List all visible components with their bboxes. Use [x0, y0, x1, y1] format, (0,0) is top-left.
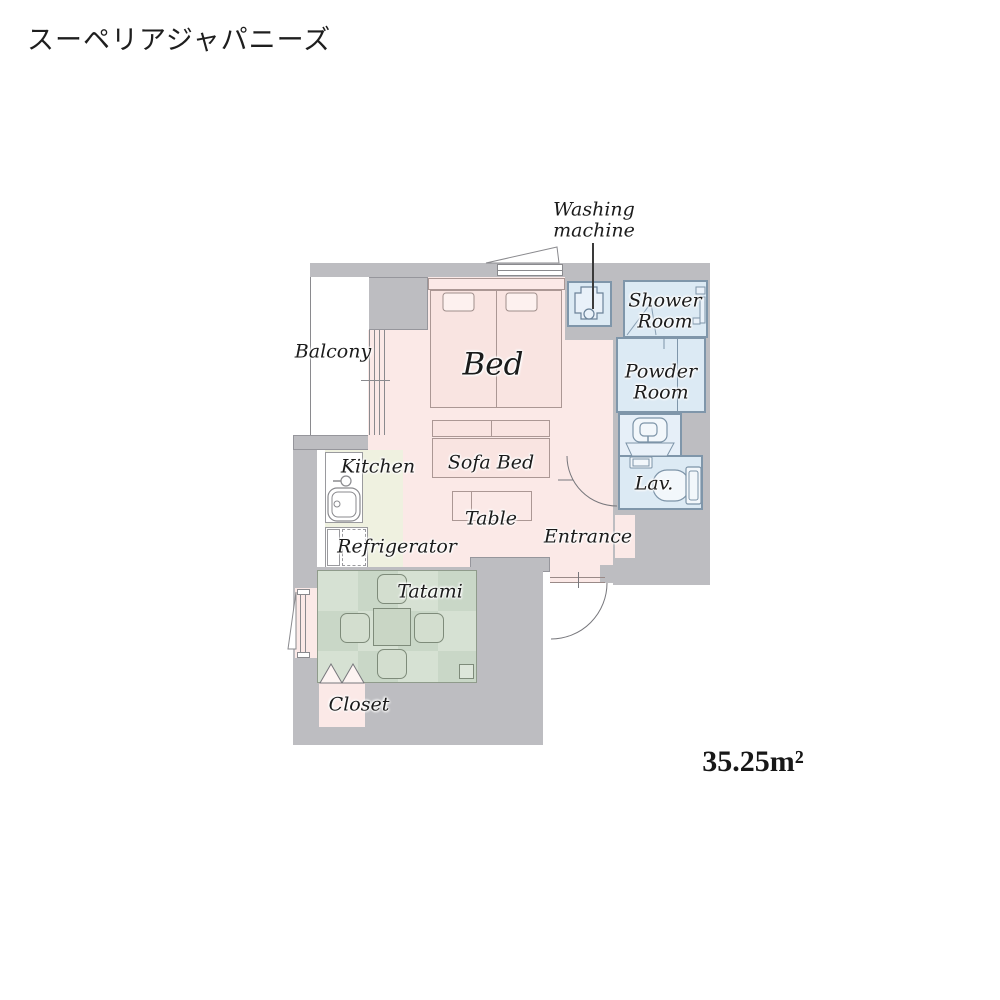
label-washing-machine: Washing machine [553, 200, 635, 243]
page-title: スーペリアジャパニーズ [27, 18, 331, 57]
kitchen-counter [325, 452, 363, 523]
tatami-window-line [305, 594, 306, 654]
bed-divider [496, 291, 497, 407]
entrance-door-tick [578, 572, 579, 588]
tatami-area [317, 570, 477, 683]
floor-cushion-icon [377, 649, 407, 679]
window-flap-icon [486, 247, 559, 263]
sliding-door-icon [384, 330, 385, 435]
window-glazing-line [498, 270, 562, 271]
sofa-bed-seat [432, 438, 550, 478]
table-icon [452, 491, 532, 521]
entrance-side-nook [615, 515, 635, 558]
floor-cushion-icon [377, 574, 407, 604]
window-jamb [297, 589, 310, 595]
closet-area [319, 683, 365, 727]
sliding-door-icon [379, 330, 380, 435]
sofa-bed-back [432, 420, 550, 437]
sliding-door-icon [374, 330, 375, 435]
tatami-table-icon [373, 608, 411, 646]
sliding-door-icon [369, 330, 370, 435]
wall-balcony-bottom [293, 435, 372, 450]
floor-cushion-icon [414, 613, 444, 643]
wall-pillar-top-left [368, 277, 428, 330]
wall-washer-nook-bottom [565, 327, 613, 340]
window-jamb [297, 652, 310, 658]
powder-room-divider [677, 339, 678, 411]
tatami-window-recess [295, 588, 317, 658]
washbasin-area [618, 413, 682, 457]
sofa-divider [491, 421, 492, 436]
sliding-door-tick [361, 380, 390, 381]
wall-entrance-step [600, 565, 613, 583]
lavatory-area [618, 455, 703, 510]
tatami-corner-post [459, 664, 474, 679]
table-divider [471, 492, 472, 520]
bedroom-window [497, 264, 563, 276]
washing-machine-nook [567, 281, 612, 327]
refrigerator-door [327, 529, 340, 566]
powder-room-area [616, 337, 706, 413]
tatami-window-line [300, 594, 301, 654]
balcony-area [310, 277, 369, 435]
shower-room-area [623, 280, 708, 338]
floorplan-canvas: スーペリアジャパニーズ 35.25m² [0, 0, 1000, 1000]
refrigerator-body [342, 529, 366, 566]
twin-beds [430, 290, 562, 408]
bed-headboard [428, 278, 565, 290]
room-area-label: 35.25m² [702, 745, 803, 779]
washing-machine-leader-line [592, 243, 594, 309]
door-swing-arc [551, 583, 607, 639]
floor-cushion-icon [340, 613, 370, 643]
